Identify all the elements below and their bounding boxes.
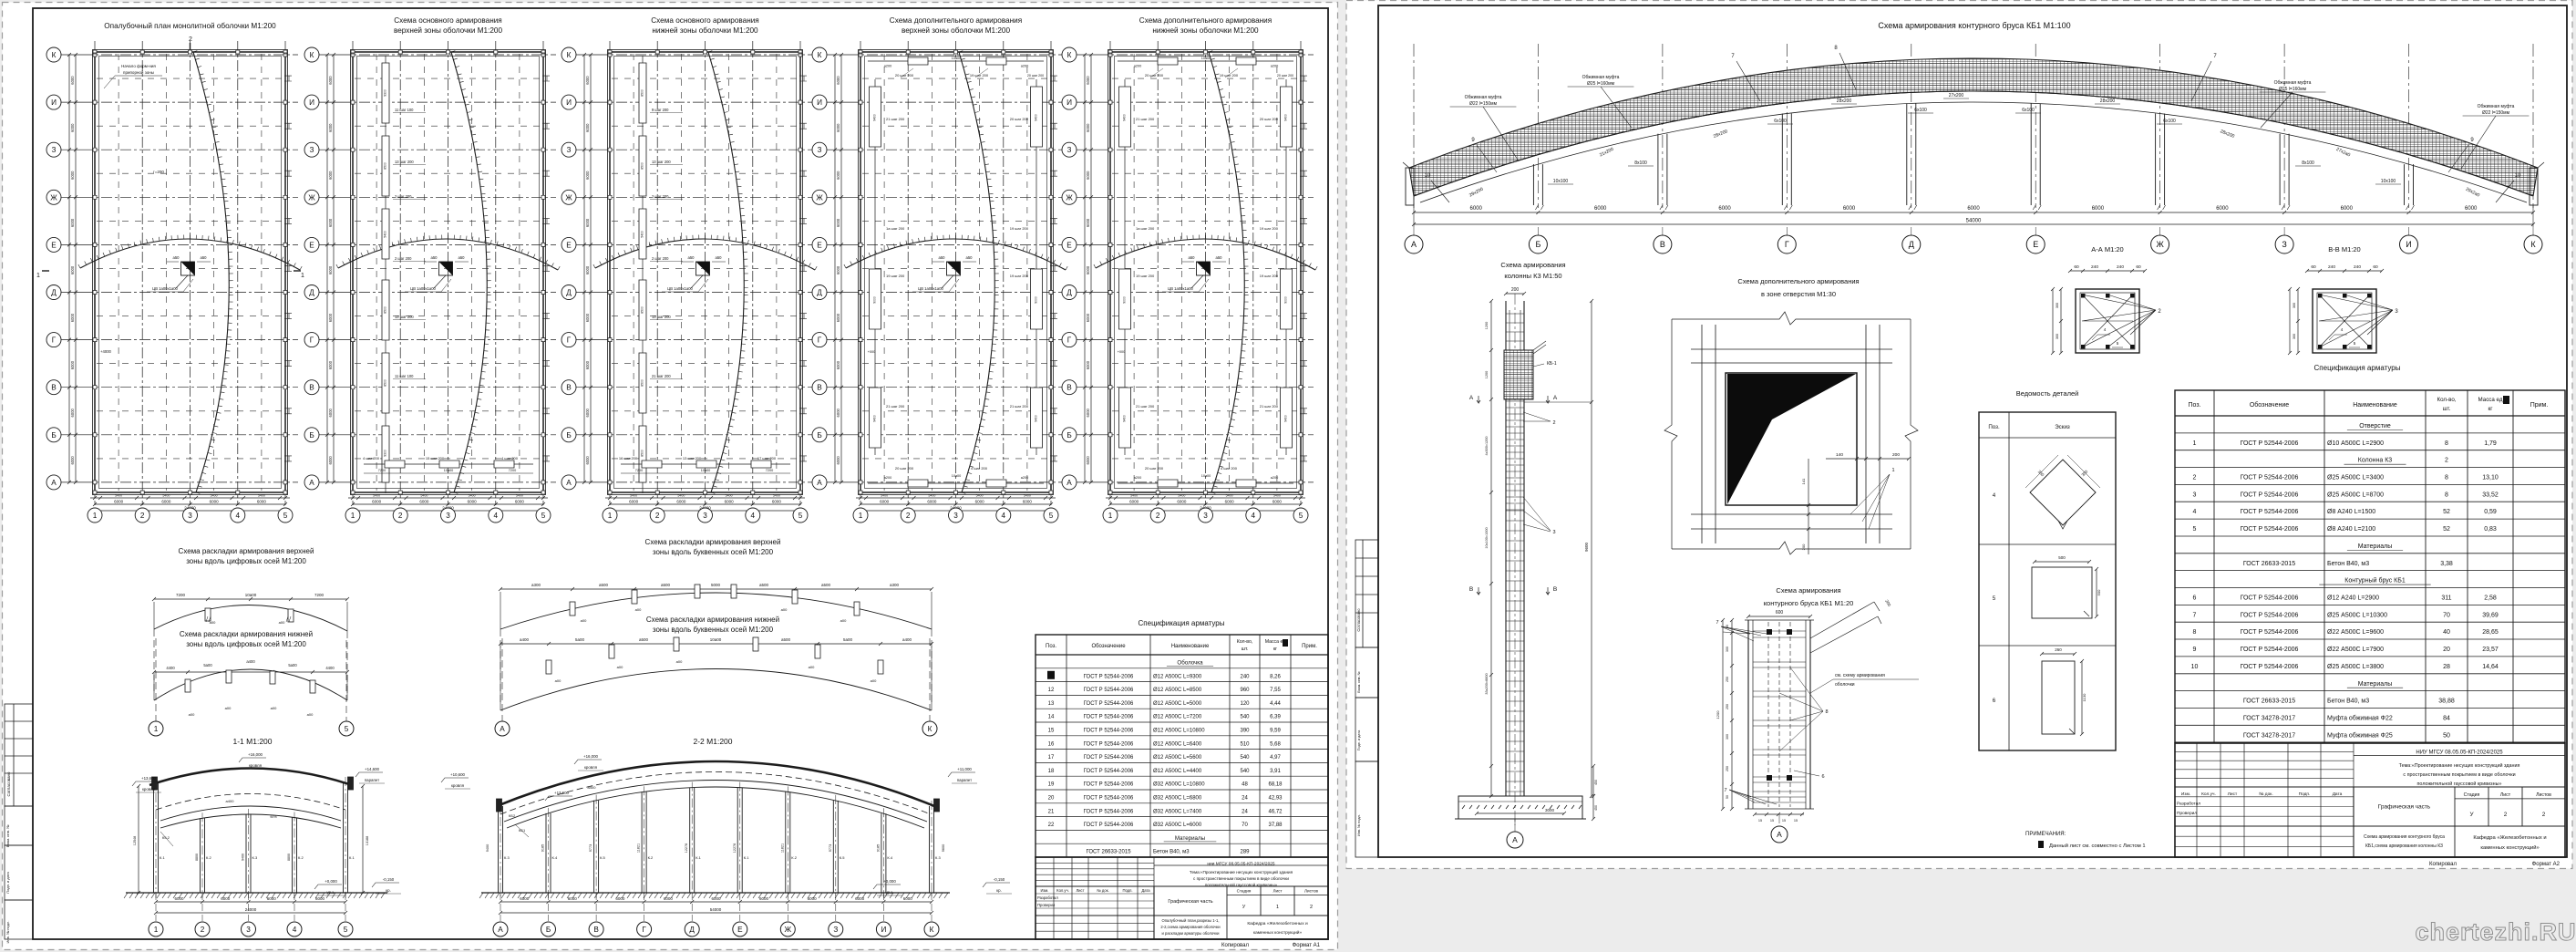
svg-text:положительной гауссовой кривиз: положительной гауссовой кривизны»	[1205, 882, 1278, 887]
svg-text:4 шаг 200: 4 шаг 200	[971, 466, 988, 471]
svg-text:Подп.: Подп.	[2299, 792, 2311, 797]
svg-text:кг: кг	[2488, 406, 2494, 412]
svg-text:21 шаг 200: 21 шаг 200	[652, 374, 671, 378]
svg-text:9,59: 9,59	[1270, 729, 1281, 734]
svg-text:10а00: 10а00	[952, 474, 962, 478]
svg-text:10а00: 10а00	[444, 469, 454, 472]
svg-text:60: 60	[2136, 264, 2141, 270]
svg-text:6000: 6000	[664, 896, 674, 901]
svg-text:Контурный брус КБ1: Контурный брус КБ1	[2344, 577, 2406, 585]
svg-text:3000: 3000	[1545, 808, 1555, 812]
svg-text:ГОСТ Р 52544-2006: ГОСТ Р 52544-2006	[2241, 492, 2299, 498]
svg-text:Тема:«Проектирование несущих к: Тема:«Проектирование несущих конструкций…	[1190, 869, 1293, 874]
svg-text:К5.2: К5.2	[162, 835, 170, 840]
svg-text:13 шаг 200: 13 шаг 200	[395, 160, 414, 164]
svg-text:1130: 1130	[2082, 693, 2087, 701]
svg-text:37,88: 37,88	[1268, 823, 1283, 828]
svg-text:13188: 13188	[366, 836, 369, 846]
svg-text:ГОСТ Р 52544-2006: ГОСТ Р 52544-2006	[1084, 809, 1134, 814]
svg-text:а00: а00	[781, 607, 788, 612]
svg-text:каменных конструкций»: каменных конструкций»	[1253, 929, 1303, 936]
svg-text:10х100: 10х100	[1553, 179, 1569, 184]
svg-text:положительной гауссовой кривиз: положительной гауссовой кривизны»	[2417, 781, 2502, 787]
svg-text:240: 240	[2328, 264, 2335, 270]
svg-text:200: 200	[1801, 543, 1806, 550]
svg-text:6000: 6000	[711, 896, 721, 901]
svg-text:50: 50	[2443, 732, 2450, 739]
svg-text:а200: а200	[1271, 476, 1278, 480]
svg-text:кровля: кровля	[451, 783, 465, 788]
svg-text:а500: а500	[781, 637, 791, 642]
svg-text:8500: 8500	[641, 306, 644, 314]
svg-text:К.3: К.3	[935, 855, 941, 860]
svg-text:5а00: 5а00	[288, 663, 297, 667]
svg-text:зоны вдоль цифровых осей М1:20: зоны вдоль цифровых осей М1:200	[186, 557, 306, 565]
svg-text:450: 450	[1594, 780, 1598, 785]
svg-text:Схема армирования: Схема армирования	[1500, 261, 1565, 269]
svg-text:4 шаг 200: 4 шаг 200	[501, 456, 519, 460]
svg-text:ГОСТ Р 52544-2006: ГОСТ Р 52544-2006	[1084, 729, 1134, 734]
svg-text:ГОСТ Р 52544-2006: ГОСТ Р 52544-2006	[2241, 595, 2299, 602]
svg-text:10: 10	[1425, 173, 1431, 179]
svg-text:20 шаг 200: 20 шаг 200	[895, 466, 914, 471]
svg-text:20 шаг 200: 20 шаг 200	[895, 73, 914, 78]
svg-text:Наименование: Наименование	[2353, 402, 2397, 409]
svg-text:а200: а200	[884, 65, 891, 68]
svg-text:Кол.уч.: Кол.уч.	[2201, 792, 2216, 797]
svg-text:1: 1	[2193, 440, 2197, 447]
svg-text:19 шаг 200: 19 шаг 200	[1010, 274, 1029, 278]
svg-text:300: 300	[1726, 647, 1729, 652]
svg-text:33х200=6600: 33х200=6600	[1485, 673, 1489, 694]
svg-text:КБ2: КБ2	[509, 813, 516, 818]
svg-text:20 шаг 200: 20 шаг 200	[1027, 74, 1044, 78]
svg-text:Графическая часть: Графическая часть	[1168, 899, 1212, 905]
svg-text:141: 141	[1801, 478, 1806, 484]
svg-text:8х100: 8х100	[2302, 160, 2314, 166]
svg-text:а500: а500	[821, 583, 831, 587]
svg-text:19 шаг 200: 19 шаг 200	[886, 274, 905, 278]
svg-text:Ø12 А500С L=7200: Ø12 А500С L=7200	[1153, 715, 1202, 720]
svg-text:Взам. инв. №: Взам. инв. №	[1357, 671, 1361, 693]
svg-text:1200: 1200	[1716, 710, 1720, 719]
svg-text:+0,000: +0,000	[325, 879, 337, 884]
svg-text:24: 24	[1242, 809, 1248, 814]
svg-text:4400: 4400	[325, 666, 335, 670]
svg-text:Материалы: Материалы	[1175, 835, 1206, 842]
svg-text:6000: 6000	[1843, 206, 1856, 212]
svg-text:а200: а200	[884, 476, 891, 480]
svg-text:Дата: Дата	[1141, 888, 1150, 893]
svg-text:ГОСТ 26633-2015: ГОСТ 26633-2015	[1086, 850, 1131, 855]
svg-text:Поз.: Поз.	[1988, 424, 2000, 430]
svg-text:К.2: К.2	[298, 855, 304, 860]
svg-text:10а00: 10а00	[245, 593, 257, 597]
svg-text:нии МГСУ 08.05.05-КП-2024/2025: нии МГСУ 08.05.05-КП-2024/2025	[1207, 861, 1275, 866]
svg-text:60: 60	[2074, 264, 2079, 270]
svg-text:5: 5	[2193, 526, 2197, 533]
svg-text:с пространственным покрытием в: с пространственным покрытием в виде обол…	[1193, 876, 1289, 881]
svg-text:9000: 9000	[1035, 296, 1038, 304]
svg-text:И: И	[2406, 240, 2411, 249]
svg-text:Схема армирования контурного б: Схема армирования контурного бруса	[2364, 834, 2445, 840]
svg-text:кровля: кровля	[584, 765, 598, 770]
svg-text:К.5: К.5	[600, 855, 605, 860]
svg-text:а500: а500	[759, 583, 769, 587]
svg-text:А: А	[500, 725, 505, 733]
svg-text:а200: а200	[1134, 476, 1141, 480]
svg-text:70: 70	[1242, 823, 1248, 828]
svg-text:Изм.: Изм.	[1041, 888, 1049, 893]
svg-text:+13,600: +13,600	[141, 776, 157, 781]
svg-text:Кол-во,: Кол-во,	[2437, 397, 2457, 403]
svg-text:З: З	[833, 926, 838, 934]
svg-text:Листов: Листов	[2536, 792, 2551, 798]
svg-text:А: А	[1553, 395, 1558, 401]
svg-text:ГОСТ Р 52544-2006: ГОСТ Р 52544-2006	[1084, 823, 1134, 828]
svg-text:Оболочка: Оболочка	[1177, 660, 1203, 667]
svg-text:а50: а50	[716, 255, 723, 260]
svg-text:16: 16	[1048, 741, 1055, 747]
svg-text:Стадия: Стадия	[1237, 889, 1252, 894]
svg-text:28,65: 28,65	[2482, 629, 2499, 636]
svg-text:28: 28	[2443, 664, 2450, 670]
svg-text:9000: 9000	[873, 296, 877, 304]
svg-text:ГОСТ Р 52544-2006: ГОСТ Р 52544-2006	[1084, 674, 1134, 679]
svg-text:10а00: 10а00	[710, 637, 722, 642]
svg-text:Схема раскладки армирования ве: Схема раскладки армирования верхней	[179, 547, 314, 555]
svg-text:К.1: К.1	[696, 855, 701, 860]
svg-text:колонны К3 М1:50: колонны К3 М1:50	[1504, 272, 1561, 280]
svg-text:Спецификация арматуры: Спецификация арматуры	[1139, 619, 1225, 627]
svg-text:Ø12 А500С L=6400: Ø12 А500С L=6400	[1153, 741, 1202, 747]
svg-text:6000: 6000	[1594, 206, 1607, 212]
svg-text:1: 1	[154, 725, 159, 733]
svg-text:верхней зоны оболочки М1:200: верхней зоны оболочки М1:200	[902, 26, 1010, 35]
svg-text:4: 4	[2193, 509, 2197, 515]
svg-text:Инв. № подл.: Инв. № подл.	[1357, 814, 1361, 836]
svg-text:1: 1	[1891, 468, 1894, 473]
svg-text:8500: 8500	[384, 379, 387, 387]
svg-text:10х100: 10х100	[2381, 179, 2396, 184]
svg-text:6х100: 6х100	[1914, 108, 1927, 113]
svg-text:13: 13	[1048, 701, 1055, 707]
svg-text:5400: 5400	[641, 231, 644, 238]
svg-text:а500: а500	[599, 583, 609, 587]
svg-text:19 шаг 200: 19 шаг 200	[970, 73, 989, 78]
svg-text:16 шаг 200: 16 шаг 200	[619, 456, 638, 460]
svg-text:-0,150: -0,150	[383, 877, 395, 882]
svg-text:Подп. и дата: Подп. и дата	[1357, 730, 1361, 750]
svg-text:1: 1	[36, 273, 40, 279]
svg-text:3: 3	[1552, 530, 1555, 535]
svg-text:8: 8	[2193, 629, 2197, 636]
svg-text:6000: 6000	[615, 896, 625, 901]
svg-text:42,93: 42,93	[1268, 796, 1283, 802]
svg-text:Ø25 А500С L=8700: Ø25 А500С L=8700	[2327, 492, 2384, 498]
svg-text:Лист: Лист	[2228, 792, 2238, 797]
svg-text:Опалубочный план,разрезы 1-1,: Опалубочный план,разрезы 1-1,	[1161, 918, 1219, 923]
svg-text:6х100: 6х100	[2022, 108, 2035, 113]
svg-text:Обозначение: Обозначение	[1091, 644, 1126, 649]
svg-text:Разработал: Разработал	[1037, 895, 1058, 900]
svg-text:Листов: Листов	[1304, 889, 1318, 894]
svg-text:8х100: 8х100	[1634, 160, 1647, 166]
svg-text:7200: 7200	[509, 469, 516, 472]
svg-text:Лист: Лист	[2500, 792, 2511, 798]
svg-text:Ø32 А500С L=7400: Ø32 А500С L=7400	[1153, 809, 1202, 814]
svg-text:а50: а50	[459, 255, 466, 260]
svg-text:Ø25 l=160мм: Ø25 l=160мм	[2279, 87, 2307, 92]
svg-text:Бетон В40, м3: Бетон В40, м3	[1153, 850, 1190, 855]
svg-text:парапет: парапет	[957, 778, 972, 782]
svg-text:4 шаг 200: 4 шаг 200	[1221, 466, 1238, 471]
svg-text:Муфта обжимная Ф22: Муфта обжимная Ф22	[2327, 715, 2393, 722]
svg-text:15: 15	[1782, 819, 1786, 823]
svg-text:2 шаг 200: 2 шаг 200	[652, 256, 669, 261]
svg-text:9300: 9300	[384, 450, 387, 457]
svg-text:7200: 7200	[378, 469, 386, 472]
svg-text:14,64: 14,64	[2482, 664, 2499, 670]
svg-text:6000: 6000	[267, 896, 277, 901]
svg-text:Ø32 А500С L=10800: Ø32 А500С L=10800	[1153, 782, 1205, 788]
svg-text:а00: а00	[635, 607, 642, 612]
svg-text:Спецификация арматуры: Спецификация арматуры	[2314, 364, 2401, 372]
svg-text:К: К	[928, 725, 933, 733]
svg-text:Масса ед: Масса ед	[2478, 397, 2503, 403]
svg-text:КБ-1: КБ-1	[1547, 361, 1557, 367]
svg-text:а00: а00	[307, 712, 314, 717]
svg-text:а400: а400	[246, 659, 255, 664]
svg-text:4,97: 4,97	[1270, 755, 1281, 761]
svg-text:Ø25 А500С L=10300: Ø25 А500С L=10300	[2327, 612, 2387, 618]
svg-text:кровля: кровля	[142, 787, 156, 792]
svg-text:Ж: Ж	[785, 926, 792, 934]
svg-text:ур.з.: ур.з.	[326, 890, 335, 895]
svg-text:+13,600: +13,600	[554, 791, 570, 795]
svg-text:50: 50	[1726, 625, 1729, 628]
svg-text:К.4: К.4	[887, 855, 892, 860]
svg-text:6: 6	[1993, 698, 1996, 704]
svg-text:каменных конструкций»: каменных конструкций»	[2480, 844, 2539, 851]
svg-text:12276: 12276	[733, 843, 737, 854]
svg-text:А: А	[1411, 240, 1417, 249]
svg-text:а50: а50	[688, 255, 696, 260]
svg-text:12548: 12548	[133, 836, 137, 846]
svg-text:7,55: 7,55	[1270, 688, 1281, 693]
svg-text:Начало форм-ния: Начало форм-ния	[121, 64, 156, 68]
svg-text:5а00: 5а00	[203, 663, 212, 667]
svg-text:Формат А2: Формат А2	[2532, 862, 2561, 867]
svg-text:15 шаг 200: 15 шаг 200	[426, 456, 445, 460]
svg-text:Схема основного армирования: Схема основного армирования	[651, 16, 758, 25]
svg-text:Обжимная муфта: Обжимная муфта	[2478, 104, 2515, 109]
svg-text:Опалубочный план монолитной об: Опалубочный план монолитной оболочки М1:…	[104, 22, 276, 30]
svg-text:20: 20	[1048, 796, 1055, 802]
svg-text:Ж: Ж	[2156, 240, 2164, 249]
svg-text:4,44: 4,44	[1270, 701, 1281, 707]
svg-text:Схема основного армирования: Схема основного армирования	[394, 16, 501, 25]
svg-text:Ø22 l=150мм: Ø22 l=150мм	[1469, 101, 1498, 107]
svg-text:ЦВ 1а00х1а00: ЦВ 1а00х1а00	[1168, 286, 1193, 291]
svg-text:а300: а300	[531, 583, 541, 587]
svg-text:7200: 7200	[635, 469, 643, 472]
svg-text:К.2: К.2	[791, 855, 797, 860]
svg-text:Колонна К3: Колонна К3	[2358, 458, 2393, 464]
svg-text:с пространственным покрытием в: с пространственным покрытием в виде обол…	[2403, 772, 2515, 778]
svg-text:11821: 11821	[637, 843, 641, 853]
svg-text:Копировал: Копировал	[1221, 943, 1250, 948]
svg-text:8: 8	[1825, 709, 1828, 715]
svg-text:ПРИМЕЧАНИЯ:: ПРИМЕЧАНИЯ:	[2025, 832, 2066, 837]
svg-text:9400: 9400	[1123, 114, 1127, 121]
svg-text:8: 8	[2445, 492, 2448, 498]
svg-text:парапет: парапет	[365, 778, 379, 782]
svg-text:а00: а00	[279, 620, 285, 625]
svg-text:2: 2	[2445, 458, 2448, 464]
svg-text:9185: 9185	[876, 844, 880, 852]
svg-text:Лист: Лист	[1273, 889, 1283, 894]
svg-text:12276: 12276	[685, 843, 688, 854]
svg-text:Ø8 А240 L=2100: Ø8 А240 L=2100	[2327, 526, 2375, 533]
svg-text:70: 70	[2443, 612, 2450, 618]
svg-text:9400: 9400	[1284, 114, 1288, 121]
svg-text:6х100: 6х100	[1774, 119, 1787, 124]
svg-text:ЦВ 1а00х1а00: ЦВ 1а00х1а00	[918, 286, 943, 291]
svg-text:6000: 6000	[2216, 206, 2229, 212]
svg-text:а50: а50	[431, 255, 438, 260]
svg-text:№ док.: № док.	[1097, 888, 1108, 893]
svg-text:Наименование: Наименование	[1171, 644, 1210, 649]
svg-text:К.1: К.1	[160, 855, 165, 860]
svg-text:Обжимная муфта: Обжимная муфта	[1465, 95, 1502, 100]
svg-text:11 шаг 100: 11 шаг 100	[395, 108, 414, 112]
svg-text:8800: 8800	[195, 854, 199, 861]
svg-text:Ø10 А500С L=2900: Ø10 А500С L=2900	[2327, 440, 2384, 447]
svg-text:К.3: К.3	[252, 855, 258, 860]
svg-text:А-А М1:20: А-А М1:20	[2091, 245, 2123, 254]
svg-text:2-2,схема армирования оболочки: 2-2,схема армирования оболочки	[1160, 925, 1221, 929]
svg-text:К: К	[2530, 240, 2536, 249]
svg-text:4х300=1200: 4х300=1200	[1485, 436, 1489, 455]
svg-text:0,83: 0,83	[2484, 526, 2497, 533]
svg-text:13,10: 13,10	[2482, 475, 2499, 481]
svg-text:289: 289	[1240, 850, 1250, 855]
svg-text:Б: Б	[546, 926, 551, 934]
svg-text:15: 15	[1758, 819, 1762, 823]
svg-text:зоны вдоль буквенных осей М1:2: зоны вдоль буквенных осей М1:200	[653, 626, 774, 634]
svg-text:Разработал: Разработал	[2177, 802, 2200, 807]
svg-text:а200: а200	[1134, 65, 1141, 68]
svg-text:ЦВ 1а00х1а00: ЦВ 1а00х1а00	[667, 286, 693, 291]
svg-text:6000: 6000	[520, 896, 530, 901]
svg-text:Ø25 l=160мм: Ø25 l=160мм	[1587, 81, 1615, 87]
svg-text:6000: 6000	[221, 896, 231, 901]
svg-text:+11,000: +11,000	[957, 767, 972, 771]
svg-text:9400: 9400	[873, 114, 877, 121]
svg-text:ЦВ 1а00х1а00: ЦВ 1а00х1а00	[410, 286, 436, 291]
svg-text:а00: а00	[225, 706, 232, 710]
svg-text:9400: 9400	[873, 415, 877, 422]
svg-text:600: 600	[1776, 610, 1784, 616]
svg-text:9400: 9400	[1035, 114, 1038, 121]
svg-text:1а шаг 200: 1а шаг 200	[1136, 226, 1155, 231]
svg-text:140: 140	[1836, 452, 1843, 458]
svg-text:К: К	[930, 926, 934, 934]
svg-text:7200: 7200	[314, 593, 325, 597]
svg-text:нижней зоны оболочки М1:200: нижней зоны оболочки М1:200	[1152, 26, 1259, 35]
svg-text:а200: а200	[1271, 65, 1278, 68]
svg-text:19: 19	[1048, 782, 1055, 788]
svg-text:а00: а00	[840, 618, 847, 623]
svg-text:7200: 7200	[766, 469, 773, 472]
svg-text:ГОСТ Р 52544-2006: ГОСТ Р 52544-2006	[1084, 755, 1134, 761]
svg-text:2-2 М1:200: 2-2 М1:200	[694, 737, 733, 746]
svg-text:200: 200	[1511, 287, 1520, 293]
svg-text:Материалы: Материалы	[2358, 543, 2392, 550]
svg-text:7200: 7200	[176, 593, 186, 597]
svg-text:и раскладки арматуры оболочки: и раскладки арматуры оболочки	[1161, 931, 1220, 936]
svg-text:Муфта обжимная Ф25: Муфта обжимная Ф25	[2327, 731, 2393, 739]
svg-text:кр.: кр.	[996, 888, 1002, 893]
svg-text:2: 2	[189, 36, 192, 43]
svg-text:А: А	[1512, 835, 1518, 844]
svg-text:21 шаг 200: 21 шаг 200	[886, 117, 905, 121]
svg-text:Ø22 l=150мм: Ø22 l=150мм	[2482, 110, 2510, 116]
svg-text:3: 3	[246, 926, 251, 934]
svg-text:300: 300	[1726, 734, 1729, 740]
svg-text:250: 250	[1726, 704, 1729, 709]
svg-text:2: 2	[2193, 475, 2197, 481]
svg-text:а200: а200	[1021, 476, 1028, 480]
svg-text:510: 510	[1240, 741, 1250, 747]
svg-text:Схема армирования контурного б: Схема армирования контурного бруса КБ1 М…	[1878, 21, 2070, 30]
svg-text:Ø32 А500С L=6800: Ø32 А500С L=6800	[1153, 796, 1202, 802]
svg-text:14: 14	[1048, 715, 1055, 720]
svg-text:У: У	[1242, 905, 1246, 910]
svg-text:оболочки: оболочки	[1835, 682, 1855, 688]
svg-text:9400: 9400	[1284, 415, 1288, 422]
svg-text:Ø12 А500С L=8500: Ø12 А500С L=8500	[1153, 688, 1202, 693]
svg-text:60: 60	[2311, 264, 2316, 270]
svg-text:10: 10	[2191, 664, 2199, 670]
svg-text:9400: 9400	[242, 854, 245, 861]
svg-text:ГОСТ Р 52544-2006: ГОСТ Р 52544-2006	[2241, 647, 2299, 653]
svg-text:ГОСТ 26633-2015: ГОСТ 26633-2015	[2243, 698, 2295, 705]
svg-text:17: 17	[1048, 755, 1055, 761]
svg-text:Ø8 А240 L=1500: Ø8 А240 L=1500	[2327, 509, 2375, 515]
svg-text:2: 2	[1552, 420, 1555, 426]
svg-text:450: 450	[1594, 805, 1598, 811]
svg-text:Ø22 А500С L=7900: Ø22 А500С L=7900	[2327, 647, 2384, 653]
svg-text:19 шаг 200: 19 шаг 200	[1260, 226, 1279, 231]
svg-text:9773: 9773	[829, 844, 832, 852]
svg-text:ГОСТ Р 52544-2006: ГОСТ Р 52544-2006	[2241, 664, 2299, 670]
svg-text:3: 3	[2193, 492, 2197, 498]
svg-text:Бетон В40, м3: Бетон В40, м3	[2327, 561, 2369, 567]
svg-text:Подп. и дата: Подп. и дата	[5, 871, 10, 893]
svg-text:а00: а00	[271, 706, 277, 710]
svg-text:68,18: 68,18	[1268, 782, 1283, 788]
svg-text:11821: 11821	[780, 843, 784, 853]
svg-text:Обжимная муфта: Обжимная муфта	[1582, 75, 1620, 80]
svg-text:К.2: К.2	[648, 855, 654, 860]
svg-text:Г: Г	[642, 926, 646, 934]
svg-text:а00: а00	[210, 620, 216, 625]
svg-text:8: 8	[2445, 440, 2448, 447]
svg-text:Е: Е	[2033, 240, 2038, 249]
svg-text:540: 540	[1240, 755, 1250, 761]
